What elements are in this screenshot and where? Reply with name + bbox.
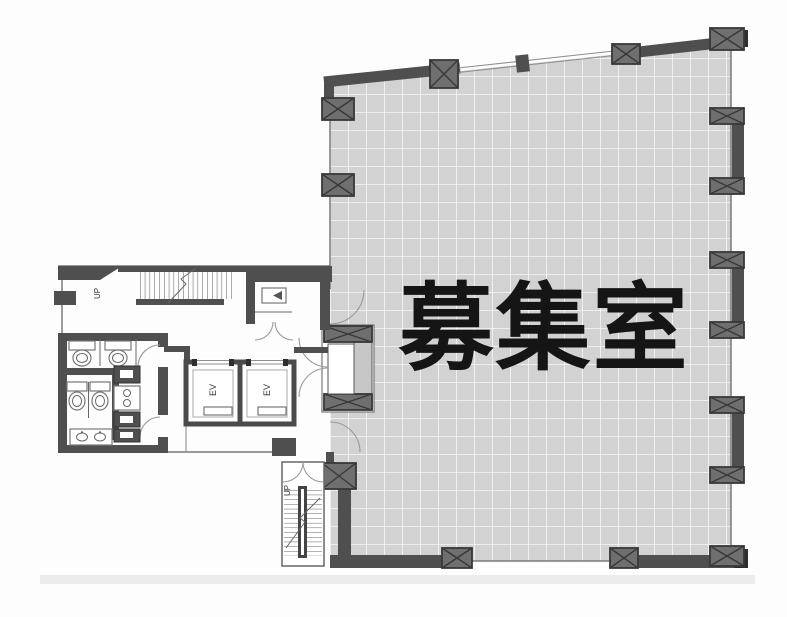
scan-shadow — [40, 575, 755, 584]
service-room — [246, 266, 332, 340]
column-bottom-a — [610, 548, 638, 568]
column-bottom-right-corner — [710, 546, 744, 566]
staircase-lower: UP — [282, 462, 324, 566]
column-bottom-left — [322, 463, 356, 489]
column-left-b — [322, 174, 354, 196]
toilet-2 — [105, 341, 131, 366]
column-right-1a — [710, 108, 744, 124]
window-mullion — [515, 54, 530, 72]
corner-block-stair — [272, 438, 296, 456]
hand-basin — [114, 386, 140, 410]
staircase-upper: UP — [93, 266, 248, 305]
column-bottom-b — [442, 548, 472, 568]
stairs-lower-label: UP — [283, 485, 292, 496]
column-right-3a — [710, 397, 744, 413]
toilet-4 — [90, 382, 110, 410]
restroom-door-arc — [138, 345, 160, 367]
column-right-2b — [710, 322, 744, 338]
elevator-1-label: EV — [208, 384, 218, 396]
pilaster — [54, 291, 76, 305]
wall-wedge-top-left — [58, 266, 122, 280]
toilet-1 — [69, 341, 95, 366]
elevator-1: EV — [186, 358, 240, 424]
floor-plan: UP EV — [0, 0, 787, 617]
elevator-2: EV — [240, 358, 294, 424]
elevator-2-label: EV — [262, 384, 272, 396]
counterweight-2 — [258, 407, 286, 415]
counterweight-1 — [204, 407, 232, 415]
restrooms — [58, 333, 168, 453]
service-shaft — [299, 325, 374, 412]
column-top-left — [430, 60, 458, 88]
floor-plan-drawing: UP EV — [0, 0, 787, 617]
room-label: 募集室 — [397, 273, 689, 384]
column-left-a — [322, 98, 354, 120]
column-top-right-a — [612, 44, 640, 64]
column-right-3b — [710, 467, 744, 483]
sink-counter — [70, 429, 112, 445]
toilet-3 — [67, 382, 87, 410]
column-right-1b — [710, 178, 744, 194]
left-wing: UP EV — [54, 266, 332, 566]
column-right-2a — [710, 252, 744, 268]
stairs-upper-label: UP — [93, 288, 102, 299]
column-top-right-corner — [710, 28, 744, 50]
